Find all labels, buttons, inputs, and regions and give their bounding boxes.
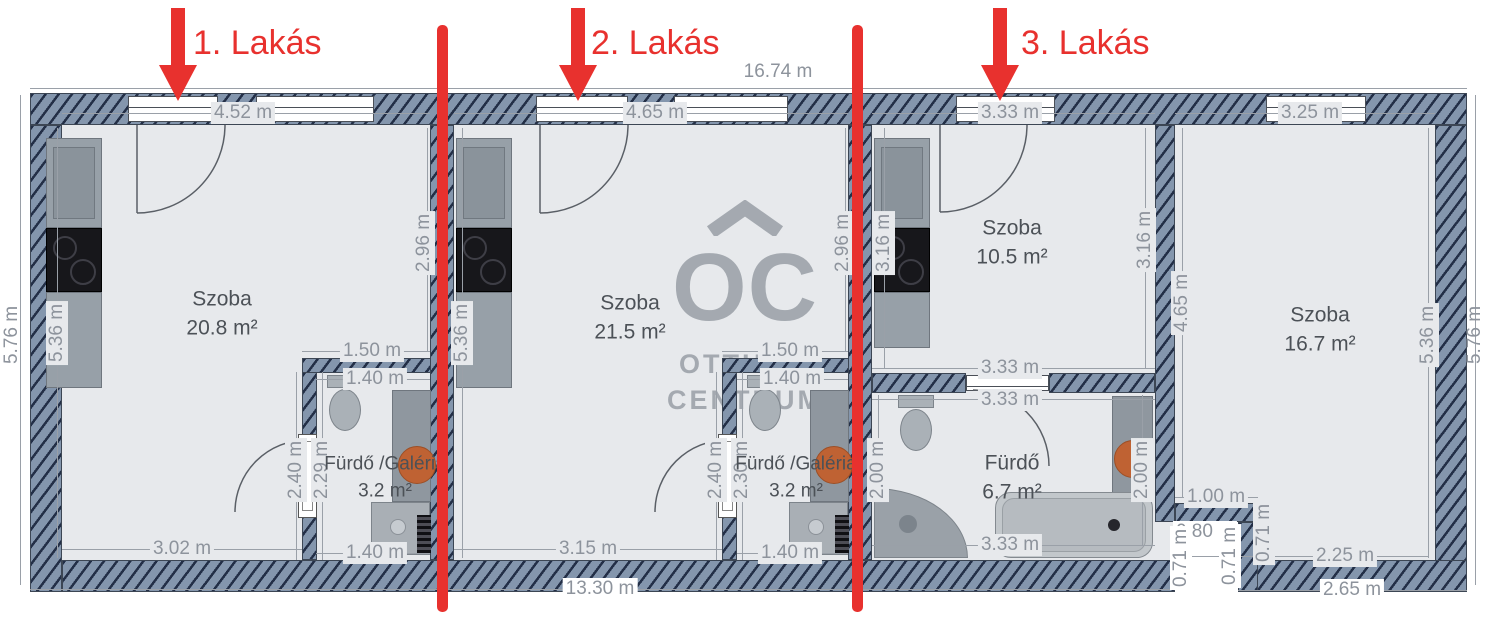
dim-apt4-left: 4.65 m bbox=[1171, 271, 1193, 335]
dim-bath2-left: 2.40 m bbox=[705, 438, 727, 502]
dim-apt3-room-bottom: 3.33 m bbox=[978, 357, 1042, 379]
dim-apt1-top: 4.52 m bbox=[211, 102, 275, 124]
room-label-apt3-szoba: Szoba 10.5 m² bbox=[976, 214, 1047, 273]
room-label-apt2-szoba: Szoba 21.5 m² bbox=[594, 289, 665, 348]
dim-apt3-bath-right: 2.00 m bbox=[1131, 438, 1153, 502]
dim-bath1-left: 2.40 m bbox=[285, 438, 307, 502]
arrow-down-apt3-icon bbox=[981, 8, 1019, 108]
dim-apt1-right: 2.96 m bbox=[413, 211, 435, 275]
room-label-apt2-furdo: Fürdő /Galéria 3.2 m² bbox=[735, 451, 856, 504]
entry-door-apt2 bbox=[540, 125, 628, 213]
dim-notch-right: 0.71 m bbox=[1253, 501, 1275, 565]
dim-apt4-bottom-inner: 2.25 m bbox=[1313, 545, 1377, 567]
dim-apt2-left: 5.36 m bbox=[451, 301, 473, 365]
dim-apt3-bath-left: 2.00 m bbox=[867, 438, 889, 502]
dim-apt2-right: 2.96 m bbox=[832, 211, 854, 275]
entry-door-apt3 bbox=[940, 125, 1027, 212]
dim-apt3-right: 3.16 m bbox=[1134, 208, 1156, 272]
dim-apt2-bottom: 3.15 m bbox=[556, 538, 620, 560]
dim-bath2-bottom: 1.40 m bbox=[758, 542, 822, 564]
apartment-label-1: 1. Lakás bbox=[193, 24, 322, 63]
floor-plan: OC OTTHON CENTRUM bbox=[0, 0, 1496, 622]
entry-door-apt1 bbox=[137, 125, 225, 213]
dim-bath1-top: 1.50 m bbox=[340, 340, 404, 362]
dim-apt4-right: 5.36 m bbox=[1417, 303, 1439, 367]
dim-right-outer: 5.76 m bbox=[1464, 303, 1486, 367]
dim-notch-mid: 0.71 m bbox=[1219, 524, 1241, 588]
dim-left-inner: 5.36 m bbox=[46, 301, 68, 365]
dim-apt2-top: 4.65 m bbox=[623, 102, 687, 124]
dim-notch-top: 1.00 m bbox=[1184, 486, 1248, 508]
apartment-label-3: 3. Lakás bbox=[1021, 24, 1150, 63]
dim-bath1-top-inner: 1.40 m bbox=[343, 368, 407, 390]
room-label-apt3-furdo: Fürdő 6.7 m² bbox=[982, 449, 1042, 508]
dim-apt1-bottom: 3.02 m bbox=[150, 538, 214, 560]
dim-bath1-bottom: 1.40 m bbox=[343, 542, 407, 564]
room-label-apt4-szoba: Szoba 16.7 m² bbox=[1284, 301, 1355, 360]
arrow-down-apt1-icon bbox=[159, 8, 197, 108]
dim-bath2-top: 1.50 m bbox=[758, 340, 822, 362]
dim-left-outer: 5.76 m bbox=[1, 303, 23, 367]
apartment-divider-1-2 bbox=[437, 25, 448, 612]
dim-notch-left: 0.71 m bbox=[1170, 526, 1192, 590]
dim-apt3-bath-top: 3.33 m bbox=[978, 389, 1042, 411]
dim-apt3-bath-bottom: 3.33 m bbox=[978, 534, 1042, 556]
room-label-apt1-szoba: Szoba 20.8 m² bbox=[186, 285, 257, 344]
room-label-apt1-furdo: Fürdő /Galéria 3.2 m² bbox=[324, 451, 445, 504]
dim-line bbox=[30, 88, 1467, 89]
dim-bath2-top-inner: 1.40 m bbox=[760, 368, 824, 390]
dim-overall-width: 16.74 m bbox=[741, 61, 816, 83]
apartment-label-2: 2. Lakás bbox=[591, 24, 720, 63]
apartment-divider-2-3 bbox=[852, 25, 863, 612]
dim-apt3-left: 3.16 m bbox=[873, 211, 895, 275]
dim-apt4-top: 3.25 m bbox=[1278, 102, 1342, 124]
dim-apt4-bottom-outer: 2.65 m bbox=[1320, 579, 1384, 601]
dim-overall-bottom: 13.30 m bbox=[563, 578, 638, 600]
